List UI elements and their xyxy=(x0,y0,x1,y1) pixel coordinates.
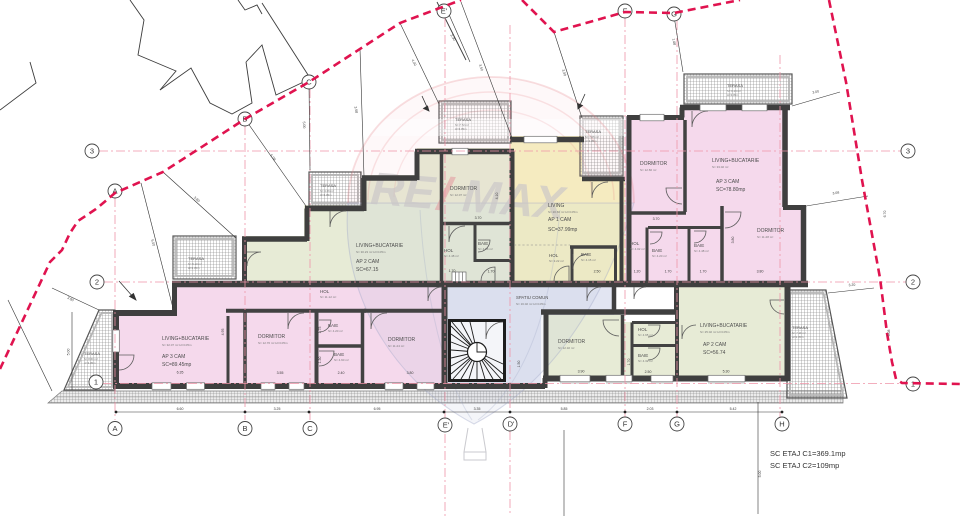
svg-text:3.80: 3.80 xyxy=(731,237,735,244)
svg-text:3.70: 3.70 xyxy=(475,216,482,220)
svg-text:BAIE: BAIE xyxy=(694,243,704,248)
svg-text:LIVING+BUCATARIE: LIVING+BUCATARIE xyxy=(712,158,760,164)
svg-text:S= 4.20 m²: S= 4.20 m² xyxy=(328,329,343,333)
svg-text:3: 3 xyxy=(906,147,910,156)
svg-text:SC=56.74: SC=56.74 xyxy=(703,350,726,356)
svg-text:1.20: 1.20 xyxy=(634,270,641,274)
svg-text:H=3.05m: H=3.05m xyxy=(455,127,467,131)
svg-text:S= 4.02 m²: S= 4.02 m² xyxy=(630,247,645,251)
svg-text:5.42: 5.42 xyxy=(730,407,737,411)
svg-text:LIVING: LIVING xyxy=(548,203,565,209)
svg-text:F: F xyxy=(623,420,628,429)
svg-text:3.80: 3.80 xyxy=(757,270,764,274)
svg-text:D': D' xyxy=(508,420,515,429)
svg-text:C: C xyxy=(307,424,313,433)
svg-text:2: 2 xyxy=(911,278,915,287)
svg-text:S= 11.28 m²: S= 11.28 m² xyxy=(757,235,773,239)
svg-text:3.35: 3.35 xyxy=(474,407,481,411)
svg-text:E': E' xyxy=(443,421,450,430)
svg-text:5.00: 5.00 xyxy=(67,349,71,356)
svg-text:BAIE: BAIE xyxy=(638,353,648,358)
svg-text:5.30: 5.30 xyxy=(723,370,730,374)
svg-text:S= 25.02 m² H=3.05m: S= 25.02 m² H=3.05m xyxy=(700,330,730,334)
svg-text:H=3.05m: H=3.05m xyxy=(320,193,332,197)
svg-text:S= 3.22 m²: S= 3.22 m² xyxy=(549,259,564,263)
svg-text:LIVING+BUCATARIE: LIVING+BUCATARIE xyxy=(356,243,404,249)
svg-text:4.95: 4.95 xyxy=(221,329,225,336)
svg-text:H=3.05m: H=3.05m xyxy=(792,335,804,339)
svg-text:2.03: 2.03 xyxy=(647,407,654,411)
svg-text:TERASA: TERASA xyxy=(188,256,204,261)
svg-text:2.40: 2.40 xyxy=(338,371,345,375)
svg-text:S= 12.07 m²: S= 12.07 m² xyxy=(450,193,466,197)
svg-text:1.30: 1.30 xyxy=(318,357,322,364)
svg-text:S= 4.60 m²: S= 4.60 m² xyxy=(334,358,349,362)
svg-text:AP 3 CAM: AP 3 CAM xyxy=(716,179,739,185)
svg-text:SC=78.80mp: SC=78.80mp xyxy=(716,187,746,193)
svg-text:1.70: 1.70 xyxy=(488,270,495,274)
svg-text:TERASA: TERASA xyxy=(792,325,808,330)
svg-text:S= 4.32 m²: S= 4.32 m² xyxy=(638,359,653,363)
svg-text:3.90: 3.90 xyxy=(578,370,585,374)
svg-text:S= 16.02 m² H=3.05m: S= 16.02 m² H=3.05m xyxy=(516,302,546,306)
svg-text:5.00: 5.00 xyxy=(302,121,307,128)
svg-text:S= 11.12 m²: S= 11.12 m² xyxy=(320,295,336,299)
svg-text:3.20: 3.20 xyxy=(848,283,855,288)
svg-text:3: 3 xyxy=(90,147,94,156)
svg-text:S= 33.02 m²: S= 33.02 m² xyxy=(712,165,728,169)
svg-text:1.75: 1.75 xyxy=(318,327,322,334)
svg-text:LIVING+BUCATARIE: LIVING+BUCATARIE xyxy=(700,323,748,329)
svg-text:DORMITOR: DORMITOR xyxy=(450,186,478,192)
svg-text:G: G xyxy=(671,10,677,19)
svg-text:RE: RE xyxy=(369,162,438,219)
svg-text:BAIE: BAIE xyxy=(334,352,344,357)
svg-text:3.55: 3.55 xyxy=(277,371,284,375)
svg-text:3.25: 3.25 xyxy=(274,407,281,411)
svg-text:SC ETAJ C1=369.1mp: SC ETAJ C1=369.1mp xyxy=(770,449,846,458)
svg-text:A: A xyxy=(112,424,117,433)
svg-text:S= 4.08 m²: S= 4.08 m² xyxy=(478,247,493,251)
svg-text:1.70: 1.70 xyxy=(449,269,456,273)
svg-text:SC=37.99mp: SC=37.99mp xyxy=(548,227,578,233)
svg-text:S= 4.15 m²: S= 4.15 m² xyxy=(581,258,596,262)
svg-text:G: G xyxy=(674,420,680,429)
svg-text:6.95: 6.95 xyxy=(374,407,381,411)
svg-text:H=3.05m: H=3.05m xyxy=(84,361,96,365)
svg-text:TERASA: TERASA xyxy=(585,129,601,134)
svg-text:1.70: 1.70 xyxy=(700,270,707,274)
svg-text:S= 4.20 m²: S= 4.20 m² xyxy=(652,254,667,258)
svg-text:S= 4.48 m²: S= 4.48 m² xyxy=(694,249,709,253)
svg-text:BAIE: BAIE xyxy=(328,323,338,328)
svg-text:TERASA: TERASA xyxy=(455,117,471,122)
svg-text:H: H xyxy=(779,420,784,429)
svg-text:AP 2 CAM: AP 2 CAM xyxy=(703,342,726,348)
svg-text:S= 4.48 m²: S= 4.48 m² xyxy=(444,254,459,258)
svg-text:H=3.05m: H=3.05m xyxy=(727,93,739,97)
svg-text:BAIE: BAIE xyxy=(652,248,662,253)
svg-text:TERASA: TERASA xyxy=(84,351,100,356)
svg-text:1.70: 1.70 xyxy=(627,359,631,366)
svg-text:AP 1 CAM: AP 1 CAM xyxy=(548,217,571,223)
svg-text:HOL: HOL xyxy=(630,241,640,246)
svg-text:S= 12.76 m² H=3.05m: S= 12.76 m² H=3.05m xyxy=(258,341,288,345)
svg-text:DORMITOR: DORMITOR xyxy=(258,334,286,340)
svg-text:B: B xyxy=(242,424,247,433)
svg-text:S= 12.32 m²: S= 12.32 m² xyxy=(558,346,574,350)
svg-text:6.35: 6.35 xyxy=(177,371,184,375)
svg-text:S= 12.66 m²: S= 12.66 m² xyxy=(640,168,656,172)
svg-text:DORMITOR: DORMITOR xyxy=(558,339,586,345)
svg-text:1: 1 xyxy=(94,378,98,387)
svg-text:AP 3 CAM: AP 3 CAM xyxy=(162,354,185,360)
svg-text:S= 32.07 m² H=3.05m: S= 32.07 m² H=3.05m xyxy=(162,343,192,347)
svg-text:TERASA: TERASA xyxy=(727,83,743,88)
svg-text:DORMITOR: DORMITOR xyxy=(757,228,785,234)
svg-text:1.70: 1.70 xyxy=(665,270,672,274)
svg-text:H=3.05m: H=3.05m xyxy=(585,139,597,143)
svg-text:4.10: 4.10 xyxy=(495,193,499,200)
svg-text:S= 11.24 m²: S= 11.24 m² xyxy=(388,344,404,348)
svg-text:AP 2 CAM: AP 2 CAM xyxy=(356,259,379,265)
svg-text:3.70: 3.70 xyxy=(653,217,660,221)
svg-text:S= 20.66 m² H=3.05m: S= 20.66 m² H=3.05m xyxy=(548,210,578,214)
svg-text:1.50: 1.50 xyxy=(517,361,521,368)
svg-text:HOL: HOL xyxy=(638,327,648,332)
svg-text:BAIE: BAIE xyxy=(478,241,488,246)
svg-text:5.00: 5.00 xyxy=(758,471,762,478)
svg-text:HOL: HOL xyxy=(320,289,330,294)
svg-text:SC ETAJ C2=109mp: SC ETAJ C2=109mp xyxy=(770,461,839,470)
svg-text:TERASA: TERASA xyxy=(320,183,336,188)
svg-text:S= 30.23 m² H=3.05m: S= 30.23 m² H=3.05m xyxy=(356,250,386,254)
svg-text:6.60: 6.60 xyxy=(177,407,184,411)
svg-text:H=3.05m: H=3.05m xyxy=(188,266,200,270)
svg-text:5.85: 5.85 xyxy=(561,407,568,411)
svg-text:HOL: HOL xyxy=(549,253,559,258)
svg-text:2.50: 2.50 xyxy=(645,370,652,374)
svg-text:BAIE: BAIE xyxy=(581,252,591,257)
svg-text:5.08: 5.08 xyxy=(887,330,891,337)
svg-text:LIVING+BUCATARIE: LIVING+BUCATARIE xyxy=(162,336,210,342)
svg-text:2: 2 xyxy=(95,278,99,287)
svg-text:S= 4.65 m²: S= 4.65 m² xyxy=(638,333,653,337)
svg-text:SC=67.15: SC=67.15 xyxy=(356,267,379,273)
svg-text:DORMITOR: DORMITOR xyxy=(640,161,668,167)
svg-text:2.50: 2.50 xyxy=(594,270,601,274)
svg-text:SC=89.45mp: SC=89.45mp xyxy=(162,362,192,368)
svg-text:6.70: 6.70 xyxy=(883,211,887,218)
svg-text:DORMITOR: DORMITOR xyxy=(388,337,416,343)
svg-text:SPATIU COMUN: SPATIU COMUN xyxy=(516,295,548,300)
svg-text:3.80: 3.80 xyxy=(407,371,414,375)
svg-text:HOL: HOL xyxy=(444,248,454,253)
